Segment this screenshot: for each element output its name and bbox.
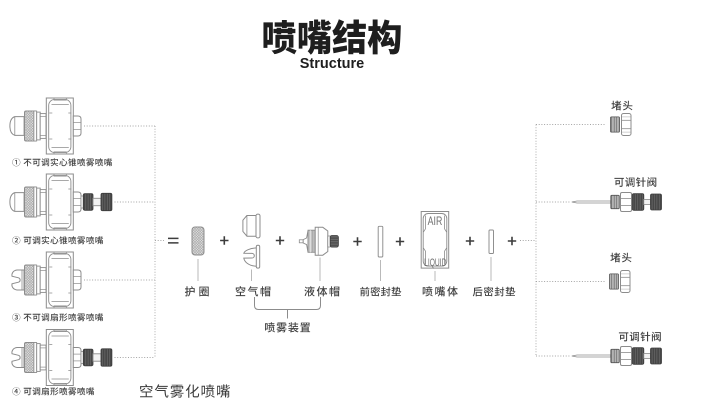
svg-text:AIR: AIR bbox=[428, 215, 443, 229]
svg-text:Structure: Structure bbox=[300, 56, 364, 72]
svg-text:LIQUID: LIQUID bbox=[424, 256, 447, 268]
